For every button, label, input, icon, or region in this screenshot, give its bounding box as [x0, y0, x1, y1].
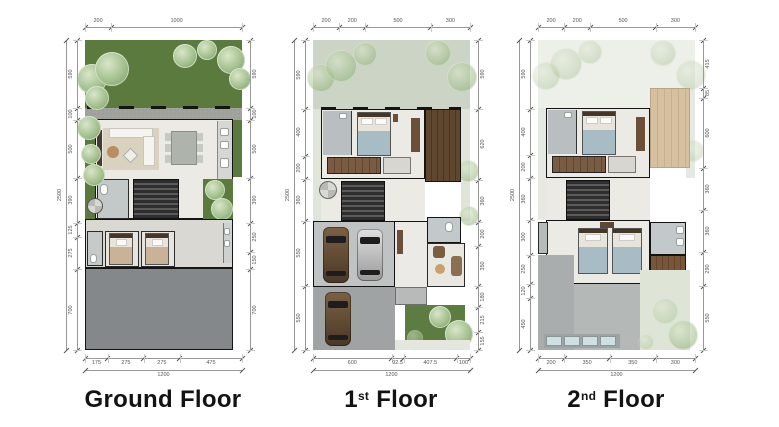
- toilet: [564, 112, 572, 118]
- dim-ext: [246, 178, 255, 179]
- armchair: [433, 246, 445, 258]
- tree-icon: [578, 40, 602, 64]
- dresser: [636, 117, 645, 151]
- dim-label: 125: [68, 225, 74, 234]
- dim-ext: [699, 168, 708, 169]
- tree-icon: [353, 42, 377, 66]
- bed-pillow: [586, 117, 598, 124]
- dim-ext: [564, 354, 565, 363]
- dim-line: [538, 27, 695, 28]
- dim-tick: [310, 356, 316, 362]
- dim-tick: [75, 38, 81, 44]
- driveway: [85, 268, 233, 350]
- dim-tick: [177, 356, 183, 362]
- floor-title-text: Floor: [369, 386, 437, 413]
- dim-ext: [695, 354, 696, 363]
- dim-line: [305, 40, 306, 350]
- bed-blanket: [583, 130, 615, 154]
- dim-label: 275: [157, 360, 166, 366]
- tree-icon: [447, 62, 477, 92]
- dim-tick: [82, 25, 88, 31]
- bed-blanket: [110, 247, 132, 264]
- toilet: [339, 113, 347, 119]
- tree-icon: [83, 164, 105, 186]
- dim-ext: [246, 108, 255, 109]
- dim-tick: [701, 166, 707, 172]
- dining-table: [171, 131, 197, 165]
- dim-total-line: [519, 40, 520, 350]
- dim-ext: [474, 307, 483, 308]
- sofa: [143, 136, 155, 166]
- dim-tick: [303, 38, 309, 44]
- dim-label: 200: [348, 18, 357, 24]
- roof-void: [538, 108, 546, 220]
- dim-tick: [692, 25, 698, 31]
- bed-blanket: [146, 247, 168, 264]
- dim-line: [703, 40, 704, 350]
- dim-ext: [474, 286, 483, 287]
- skylight: [546, 336, 562, 346]
- dim-tick: [653, 25, 659, 31]
- dim-tick: [303, 283, 309, 289]
- dim-label: 250: [252, 233, 258, 242]
- dim-tick: [476, 330, 482, 336]
- dining-chair: [197, 155, 203, 163]
- staircase: [566, 180, 610, 220]
- floor-title-text: 1: [344, 386, 358, 413]
- dim-label: 155: [480, 336, 486, 345]
- dim-tick: [82, 356, 88, 362]
- dim-total-line: [85, 370, 242, 371]
- dim-label: 360: [705, 227, 711, 236]
- bed-headboard: [583, 112, 615, 116]
- dim-ext: [526, 350, 535, 351]
- dim-ext: [656, 354, 657, 363]
- staircase: [133, 179, 179, 219]
- spiral-staircase: [319, 181, 337, 199]
- dim-tick: [476, 305, 482, 311]
- dim-ext: [470, 23, 471, 32]
- bed: [109, 233, 133, 265]
- dim-tick: [248, 106, 254, 112]
- dim-label: 150: [252, 256, 258, 265]
- powder-room: [427, 217, 461, 243]
- bed-pillow: [152, 239, 163, 246]
- dim-tick: [428, 25, 434, 31]
- dim-ext: [695, 23, 696, 32]
- dim-tick: [467, 368, 473, 374]
- dim-label: 700: [68, 305, 74, 314]
- tree-icon: [81, 144, 101, 164]
- dim-ext: [246, 252, 255, 253]
- dim-tick: [248, 249, 254, 255]
- dim-label: 590: [521, 70, 527, 79]
- dim-tick: [528, 106, 534, 112]
- dim-tick: [303, 107, 309, 113]
- dim-tick: [701, 250, 707, 256]
- closet-counter: [383, 157, 411, 174]
- dim-tick: [476, 243, 482, 249]
- appliance: [224, 240, 230, 247]
- dim-ext: [474, 332, 483, 333]
- floor-title: 1st Floor: [291, 386, 491, 414]
- dim-tick: [141, 356, 147, 362]
- bed-headboard: [358, 113, 390, 117]
- dim-line: [85, 358, 242, 359]
- dim-tick: [701, 208, 707, 214]
- dim-tick: [75, 348, 81, 354]
- tree-icon: [77, 116, 101, 140]
- dim-tick: [75, 220, 81, 226]
- dim-tick: [476, 348, 482, 354]
- dim-tick: [248, 348, 254, 354]
- dim-tick: [239, 356, 245, 362]
- toilet: [90, 254, 97, 263]
- dim-label: 620: [480, 140, 486, 149]
- dim-ext: [699, 98, 708, 99]
- kitchenette: [676, 238, 684, 246]
- dim-ext: [457, 354, 458, 363]
- dim-ext: [108, 354, 109, 363]
- dim-label: 120: [521, 286, 527, 295]
- dim-label: 350: [582, 360, 591, 366]
- dim-tick: [310, 368, 316, 374]
- dim-ext: [404, 354, 405, 363]
- dim-label: 350: [628, 360, 637, 366]
- bed-headboard: [146, 234, 168, 238]
- lawn: [313, 109, 321, 221]
- dim-tick: [82, 368, 88, 374]
- dim-ext: [538, 23, 539, 32]
- dim-label: 200: [546, 360, 555, 366]
- dim-line: [313, 27, 470, 28]
- dim-label: 415: [705, 60, 711, 69]
- dim-ext: [85, 354, 86, 363]
- dim-tick: [528, 281, 534, 287]
- dim-label: 1000: [170, 18, 182, 24]
- car-rear-window: [360, 270, 380, 275]
- dim-label: 390: [252, 196, 258, 205]
- dim-label: 475: [206, 360, 215, 366]
- dim-tick: [310, 25, 316, 31]
- dim-label: 500: [68, 144, 74, 153]
- dim-tick: [75, 267, 81, 273]
- dim-tick: [467, 25, 473, 31]
- dim-label: 200: [573, 18, 582, 24]
- dim-tick: [528, 38, 534, 44]
- dim-tick: [517, 348, 523, 354]
- tree-icon: [650, 40, 676, 66]
- dim-ext: [699, 40, 708, 41]
- wardrobe: [552, 156, 606, 173]
- dim-tick: [535, 25, 541, 31]
- dim-ext: [301, 40, 310, 41]
- dim-line: [478, 40, 479, 350]
- dim-tick: [239, 25, 245, 31]
- dim-tick: [476, 284, 482, 290]
- dim-label: 450: [521, 319, 527, 328]
- dim-ext: [242, 23, 243, 32]
- dim-ext: [246, 269, 255, 270]
- bed: [582, 111, 616, 155]
- dim-ext: [392, 354, 393, 363]
- appliance: [220, 158, 229, 168]
- dim-ext: [699, 286, 708, 287]
- dim-ext: [246, 40, 255, 41]
- dim-label: 200: [321, 18, 330, 24]
- dim-ext: [526, 284, 535, 285]
- dim-tick: [248, 175, 254, 181]
- dim-tick: [454, 356, 460, 362]
- toilet: [445, 222, 453, 232]
- dim-label: 92.5: [392, 360, 403, 366]
- dining-chair: [165, 144, 171, 152]
- path: [395, 340, 470, 350]
- dim-label: 275: [121, 360, 130, 366]
- dim-label: 200: [546, 18, 555, 24]
- dim-tick: [701, 86, 707, 92]
- dim-total-line: [294, 40, 295, 350]
- dim-ext: [339, 23, 340, 32]
- dim-label: 407.5: [423, 360, 437, 366]
- wood-deck: [425, 109, 461, 182]
- dim-ext: [301, 350, 310, 351]
- floor-plans-sheet: 2001000175275275475120059010050039012527…: [0, 0, 779, 427]
- dim-tick: [248, 220, 254, 226]
- car-windshield: [360, 237, 380, 244]
- dim-ext: [365, 23, 366, 32]
- balcony: [538, 222, 548, 254]
- roof-deck: [650, 88, 690, 168]
- floor-title-sup: st: [358, 389, 369, 403]
- appliance: [220, 128, 229, 136]
- tree-icon: [652, 298, 678, 324]
- dim-tick: [292, 348, 298, 354]
- entry-door-panel: [397, 230, 403, 254]
- dim-tick: [701, 284, 707, 290]
- dim-label: 290: [705, 264, 711, 273]
- floor-title-text: Floor: [596, 386, 664, 413]
- dim-tick: [105, 356, 111, 362]
- car-windshield: [326, 236, 346, 243]
- appliance: [224, 228, 230, 235]
- dim-tick: [528, 176, 534, 182]
- dim-tick: [108, 25, 114, 31]
- dim-tick: [303, 348, 309, 354]
- dim-tick: [467, 356, 473, 362]
- dim-tick: [248, 117, 254, 123]
- dim-tick: [239, 368, 245, 374]
- dim-label: 350: [480, 261, 486, 270]
- dim-ext: [73, 269, 82, 270]
- dim-ext: [246, 350, 255, 351]
- floor-title: 2nd Floor: [516, 386, 716, 414]
- dim-ext: [246, 223, 255, 224]
- bathroom: [323, 111, 352, 155]
- dim-ext: [699, 350, 708, 351]
- dim-label: 300: [521, 233, 527, 242]
- bed: [145, 233, 169, 265]
- dim-label: 300: [446, 18, 455, 24]
- dim-total-line: [66, 40, 67, 350]
- dim-tick: [336, 25, 342, 31]
- dim-tick: [528, 252, 534, 258]
- bathroom: [548, 110, 577, 154]
- dim-ext: [526, 155, 535, 156]
- dim-label: 180: [480, 292, 486, 301]
- dim-label: 300: [671, 18, 680, 24]
- dim-ext: [301, 179, 310, 180]
- bed-pillow: [116, 239, 127, 246]
- dim-ext: [699, 88, 708, 89]
- dim-ext: [73, 108, 82, 109]
- dim-tick: [692, 368, 698, 374]
- dim-tick: [607, 356, 613, 362]
- dim-label: 550: [705, 313, 711, 322]
- dim-ext: [474, 40, 483, 41]
- dim-ext: [526, 220, 535, 221]
- dim-ext: [474, 109, 483, 110]
- dim-tick: [561, 356, 567, 362]
- skylight: [582, 336, 598, 346]
- dim-ext: [73, 237, 82, 238]
- dim-tick: [64, 38, 70, 44]
- dim-line: [77, 40, 78, 350]
- dim-tick: [248, 267, 254, 273]
- car: [325, 292, 351, 346]
- dim-ext: [144, 354, 145, 363]
- car-rear-window: [326, 271, 346, 276]
- dim-tick: [528, 348, 534, 354]
- kitchenette: [676, 226, 684, 234]
- skylight: [600, 336, 616, 346]
- bed: [612, 228, 642, 274]
- dim-total-line: [538, 370, 695, 371]
- dim-ext: [590, 23, 591, 32]
- dim-label: 85: [705, 90, 711, 96]
- dim-tick: [587, 25, 593, 31]
- dim-tick: [701, 348, 707, 354]
- armchair: [451, 256, 462, 276]
- bed-pillow: [600, 117, 612, 124]
- bed-blanket: [579, 247, 607, 273]
- dim-tick: [476, 178, 482, 184]
- bed: [578, 228, 608, 274]
- dim-label: 500: [252, 144, 258, 153]
- floor-title: Ground Floor: [63, 386, 263, 414]
- car: [357, 229, 383, 281]
- dim-ext: [526, 109, 535, 110]
- tree-icon: [211, 198, 233, 220]
- dim-ext: [85, 23, 86, 32]
- tree-icon: [95, 52, 129, 86]
- dim-label: 400: [521, 127, 527, 136]
- dim-ext: [431, 23, 432, 32]
- wall: [87, 106, 239, 109]
- dim-label: 100: [68, 109, 74, 118]
- dim-tick: [517, 38, 523, 44]
- dim-ext: [301, 221, 310, 222]
- dim-label: 590: [296, 70, 302, 79]
- car-windshield: [328, 301, 348, 308]
- dim-label: 200: [296, 163, 302, 172]
- dim-label: 550: [296, 313, 302, 322]
- car-rear-window: [328, 335, 348, 340]
- wardrobe: [327, 157, 381, 174]
- dim-label: 100: [252, 109, 258, 118]
- floor-title-text: 2: [567, 386, 581, 413]
- dim-tick: [303, 153, 309, 159]
- armchair: [107, 146, 119, 158]
- dim-tick: [75, 175, 81, 181]
- dim-tick: [535, 368, 541, 374]
- dim-tick: [528, 218, 534, 224]
- side-table: [393, 114, 398, 122]
- dresser: [411, 118, 420, 152]
- tree-icon: [85, 86, 109, 110]
- bed-blanket: [358, 131, 390, 155]
- dim-tick: [535, 356, 541, 362]
- dim-ext: [111, 23, 112, 32]
- dim-ext: [474, 350, 483, 351]
- dim-ext: [73, 350, 82, 351]
- dining-chair: [197, 133, 203, 141]
- dim-total-label: 2500: [285, 189, 291, 201]
- dim-line: [538, 358, 695, 359]
- bed-pillow: [619, 234, 636, 241]
- dim-ext: [301, 109, 310, 110]
- dim-label: 390: [68, 196, 74, 205]
- bed-headboard: [579, 229, 607, 233]
- toilet: [100, 184, 108, 195]
- dim-ext: [73, 40, 82, 41]
- floor-title-sup: nd: [581, 389, 596, 403]
- dim-label: 360: [521, 194, 527, 203]
- tree-icon: [676, 60, 706, 90]
- dim-ext: [313, 23, 314, 32]
- dim-ext: [656, 23, 657, 32]
- dim-tick: [64, 348, 70, 354]
- tree-icon: [197, 40, 217, 60]
- dining-chair: [197, 144, 203, 152]
- dim-ext: [699, 210, 708, 211]
- dim-total-label: 2500: [57, 189, 63, 201]
- dim-ext: [180, 354, 181, 363]
- dining-chair: [165, 155, 171, 163]
- dim-label: 275: [68, 249, 74, 258]
- spiral-staircase: [87, 198, 103, 214]
- dim-label: 600: [705, 129, 711, 138]
- dim-label: 700: [252, 305, 258, 314]
- dim-ext: [301, 286, 310, 287]
- dim-tick: [389, 356, 395, 362]
- dim-label: 100: [459, 360, 468, 366]
- dim-label: 550: [296, 249, 302, 258]
- dim-total-line: [313, 370, 470, 371]
- dim-ext: [526, 255, 535, 256]
- bed-blanket: [613, 247, 641, 273]
- bed: [357, 112, 391, 156]
- dim-label: 590: [252, 70, 258, 79]
- dim-label: 200: [93, 18, 102, 24]
- dim-ext: [474, 246, 483, 247]
- dim-label: 360: [480, 197, 486, 206]
- dim-ext: [73, 178, 82, 179]
- dim-ext: [538, 354, 539, 363]
- dim-tick: [692, 356, 698, 362]
- dim-tick: [303, 177, 309, 183]
- bed-pillow: [585, 234, 602, 241]
